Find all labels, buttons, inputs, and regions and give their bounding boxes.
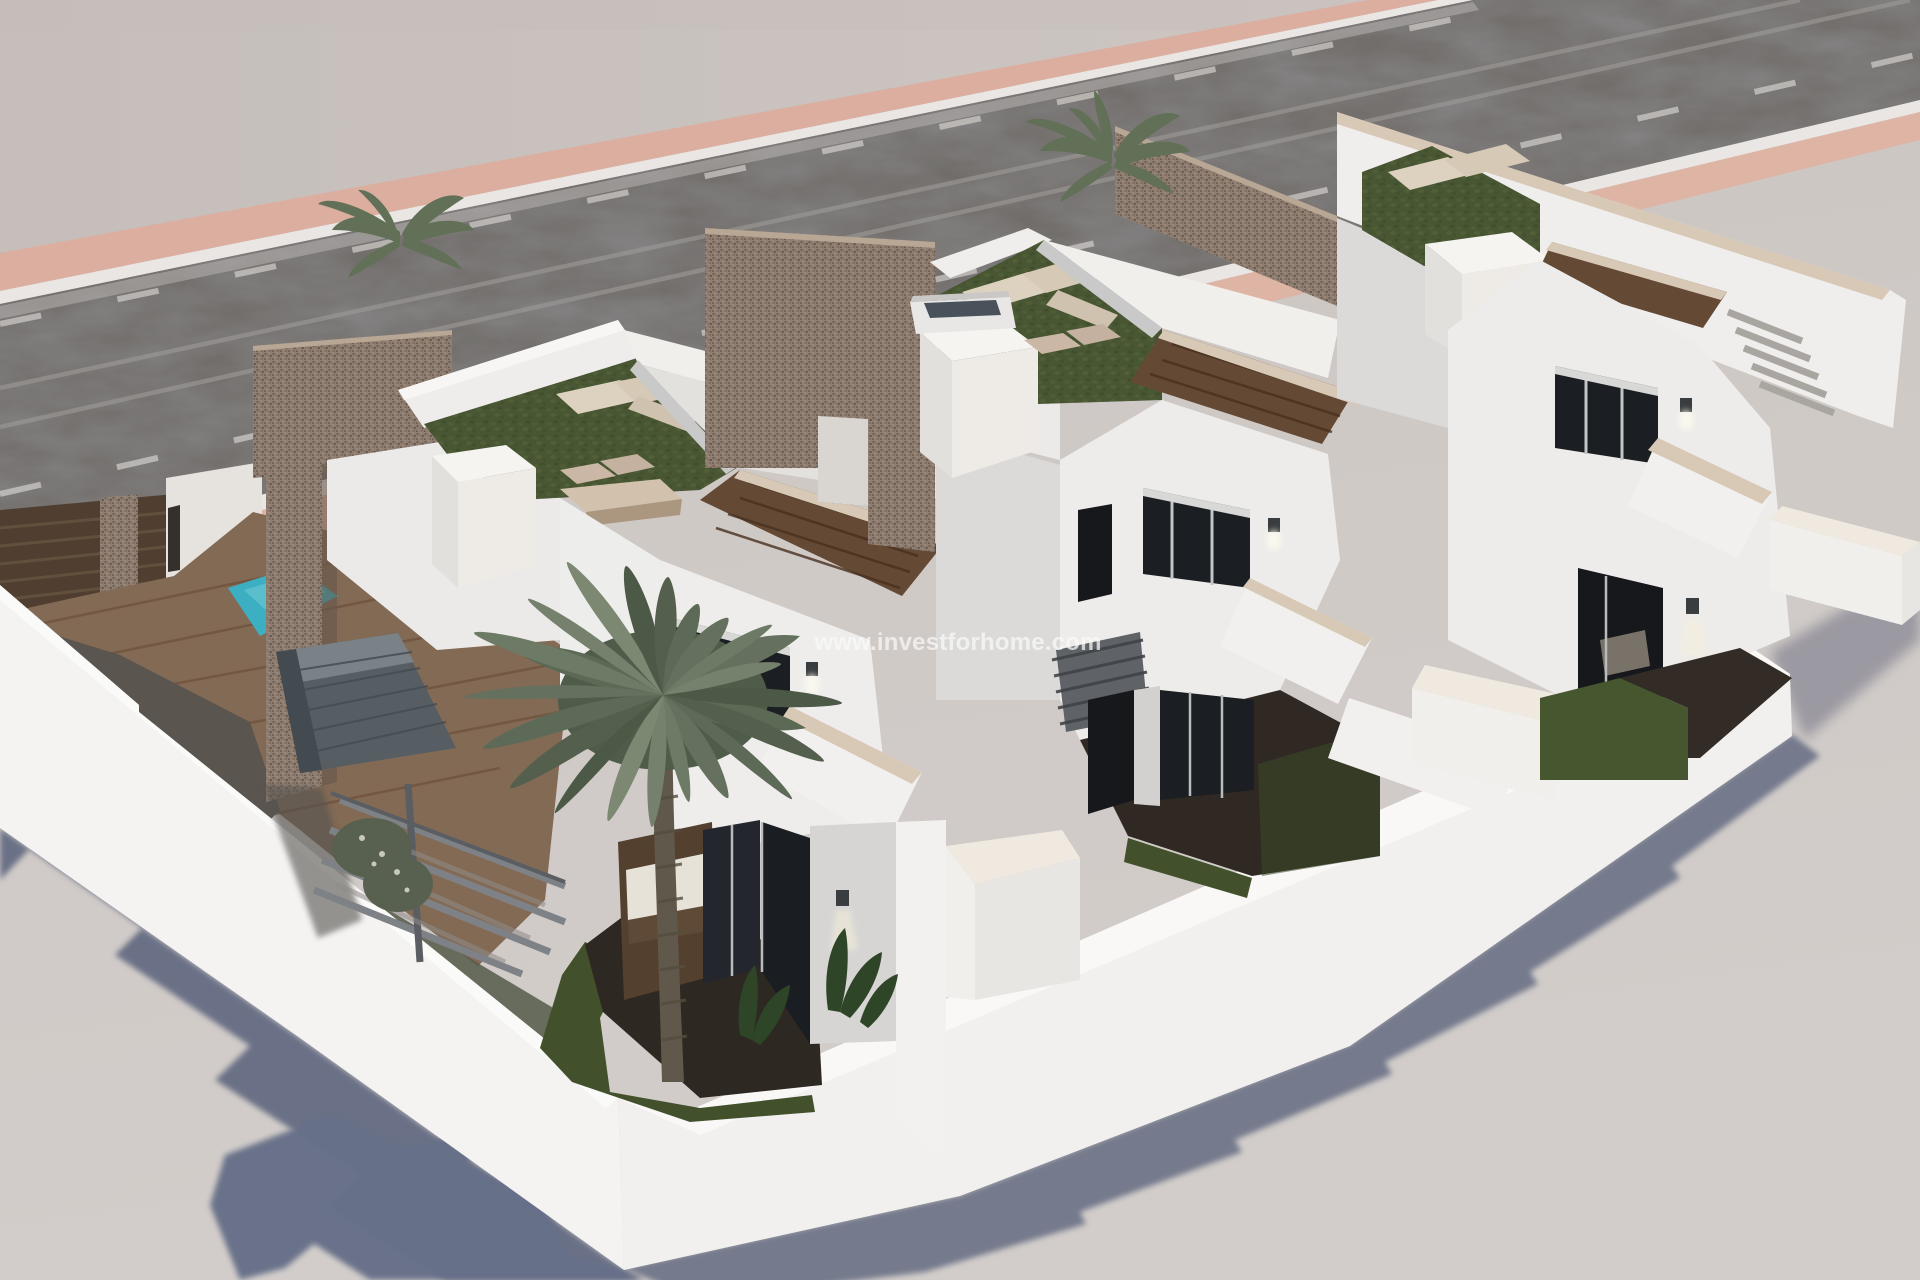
svg-text:www.investforhome.com: www.investforhome.com	[813, 629, 1101, 656]
